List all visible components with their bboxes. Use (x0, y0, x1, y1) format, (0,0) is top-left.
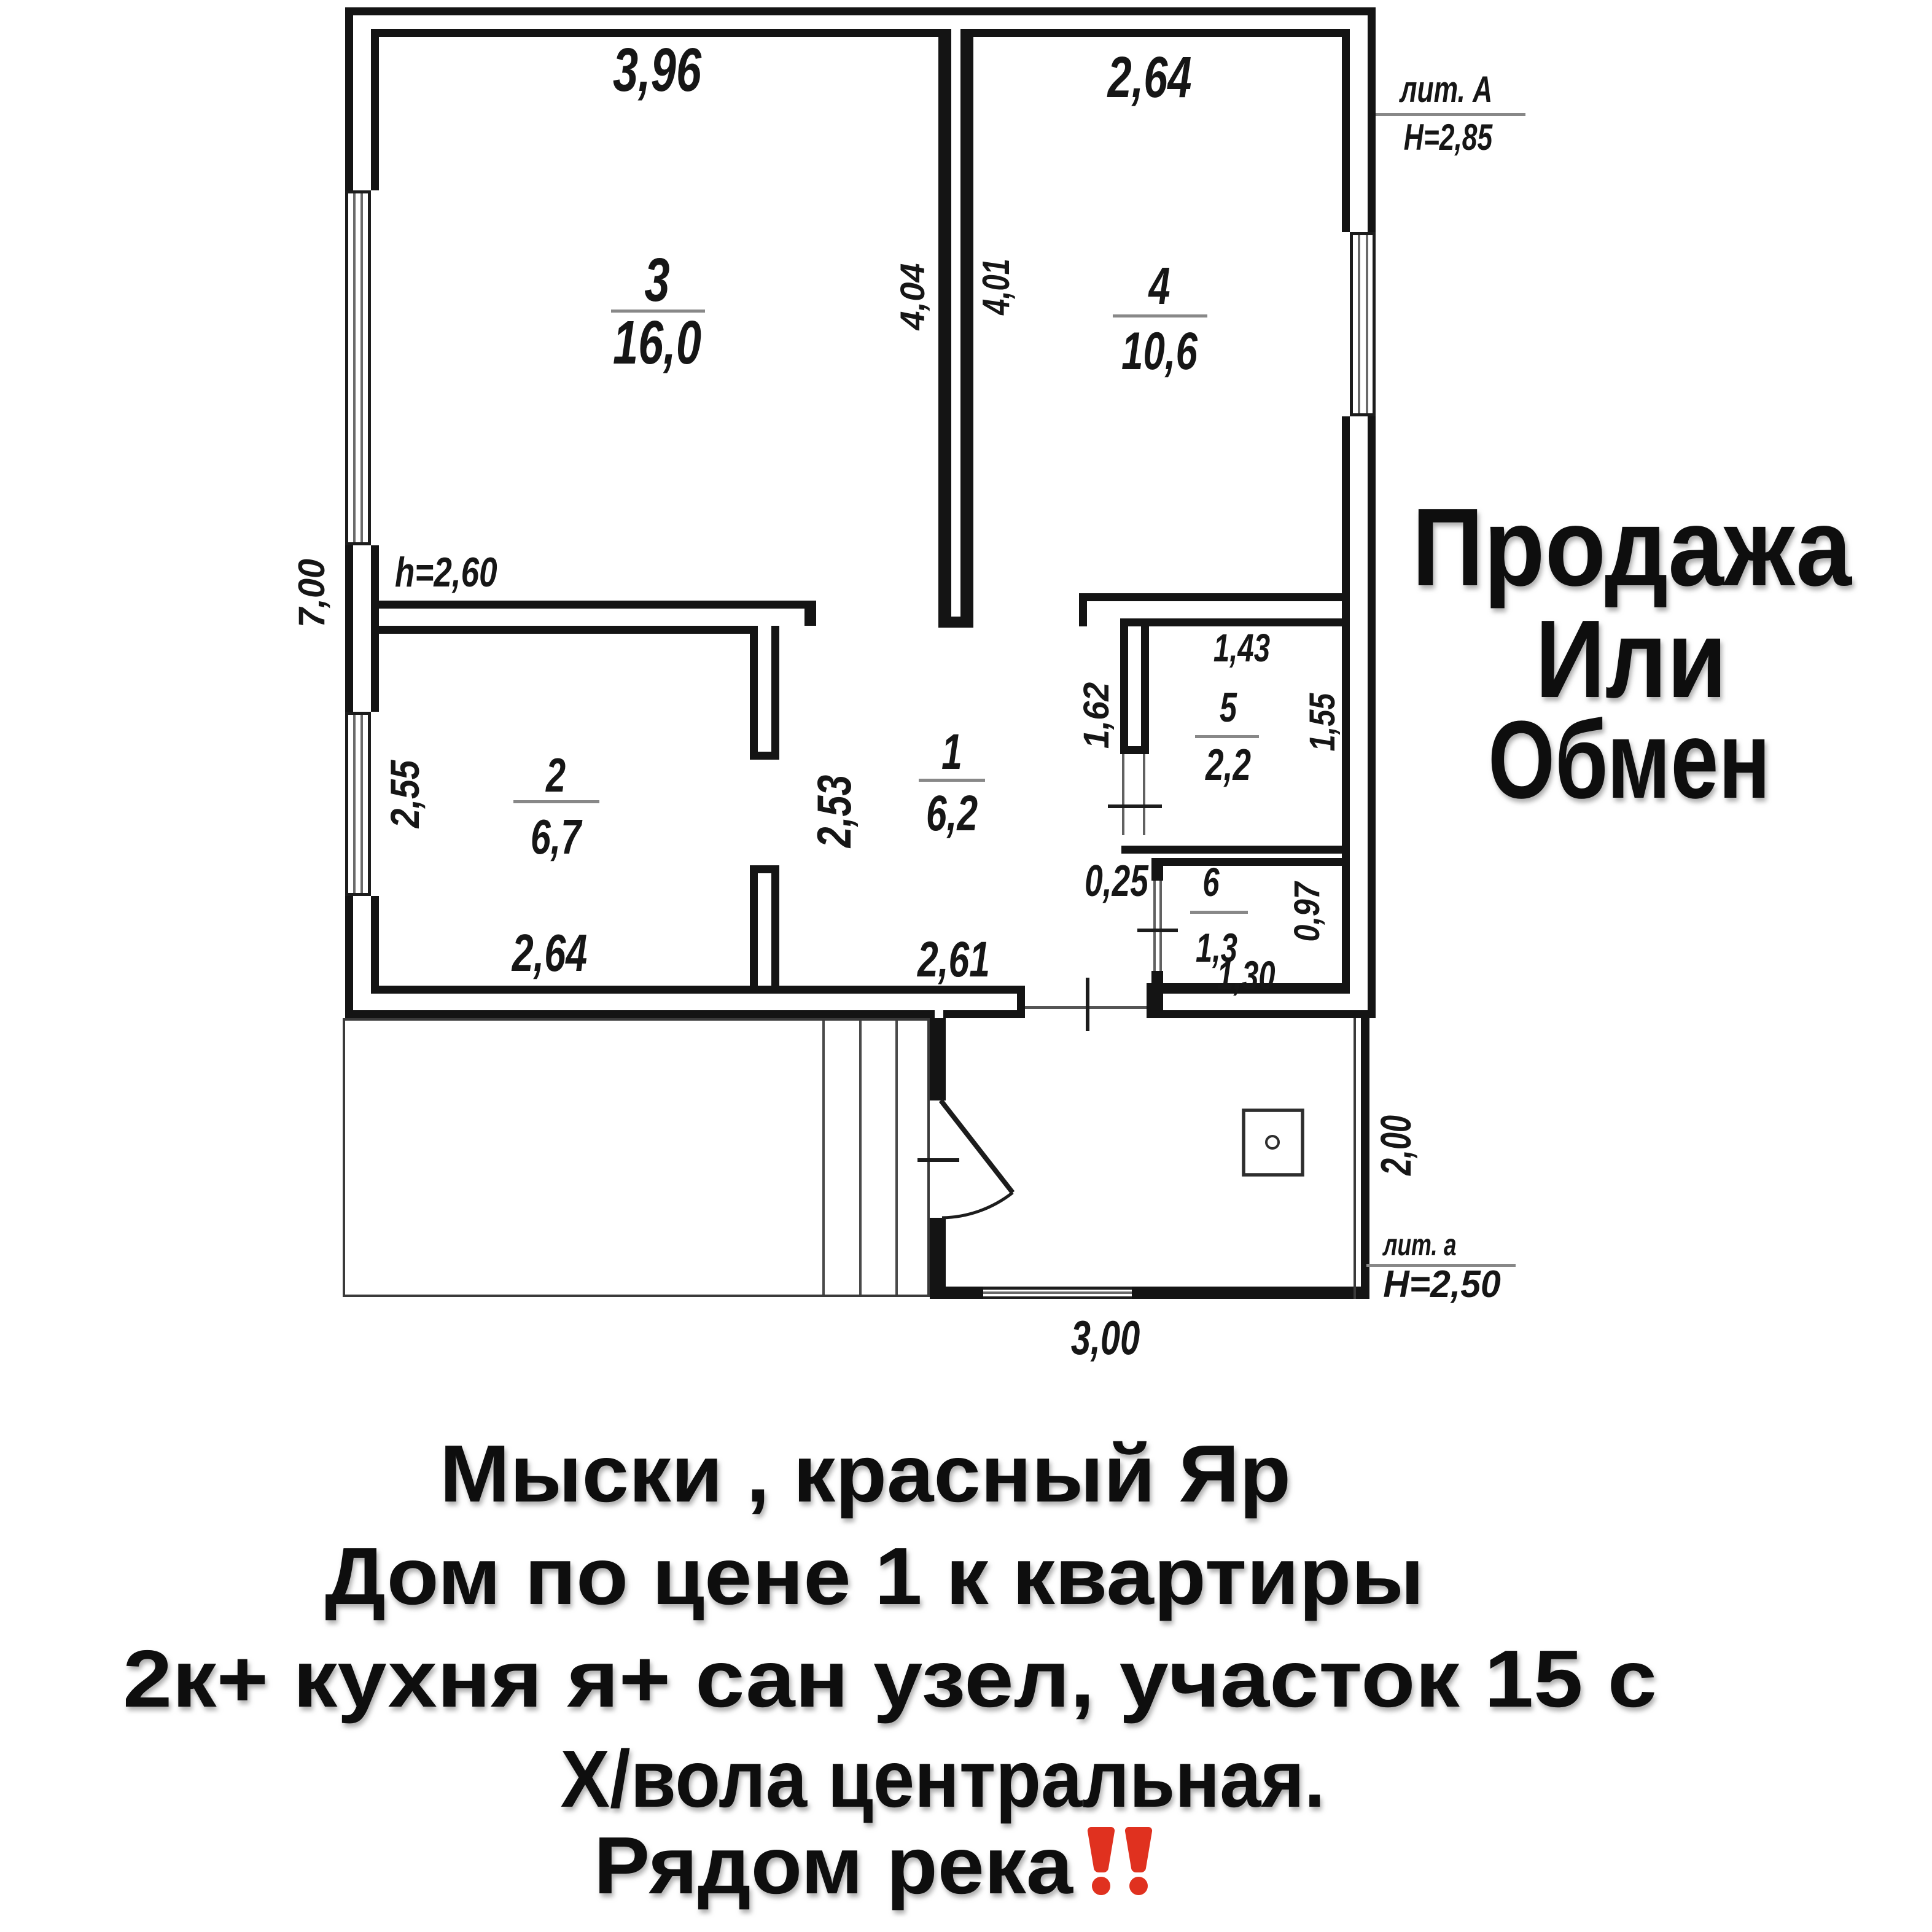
svg-text:6,2: 6,2 (926, 785, 978, 841)
svg-text:Н=2,50: Н=2,50 (1383, 1263, 1501, 1306)
svg-text:Х/вола центральная.: Х/вола центральная. (561, 1734, 1325, 1824)
svg-text:2,64: 2,64 (1107, 44, 1191, 110)
svg-text:2,00: 2,00 (1372, 1115, 1420, 1176)
svg-text:лит. а: лит. а (1382, 1228, 1457, 1263)
svg-text:3: 3 (644, 245, 669, 314)
svg-text:5: 5 (1220, 684, 1237, 731)
svg-text:16,0: 16,0 (613, 308, 701, 377)
svg-text:Н=2,85: Н=2,85 (1404, 117, 1493, 158)
svg-text:2,55: 2,55 (383, 760, 428, 828)
svg-text:1,43: 1,43 (1213, 626, 1270, 670)
svg-text:4,04: 4,04 (893, 263, 932, 331)
svg-text:0,97: 0,97 (1288, 881, 1327, 942)
svg-text:2,64: 2,64 (511, 924, 587, 982)
svg-text:6,7: 6,7 (531, 809, 583, 864)
svg-text:2,2: 2,2 (1205, 741, 1251, 790)
svg-text:лит. А: лит. А (1398, 69, 1492, 111)
svg-text:1,30: 1,30 (1217, 953, 1275, 999)
svg-text:4,01: 4,01 (975, 259, 1018, 316)
svg-text:Рядом река: Рядом река (594, 1820, 1074, 1911)
svg-text:3,96: 3,96 (613, 35, 702, 104)
svg-text:Обмен: Обмен (1488, 698, 1770, 822)
svg-text:3,00: 3,00 (1071, 1311, 1140, 1365)
svg-text:6: 6 (1202, 860, 1220, 905)
svg-text:2: 2 (545, 749, 566, 803)
svg-text:2к+ кухня я+ сан узел, участок: 2к+ кухня я+ сан узел, участок 15 с (123, 1634, 1657, 1724)
svg-text:1,62: 1,62 (1077, 682, 1116, 749)
svg-text:Дом по цене 1 к квартиры: Дом по цене 1 к квартиры (325, 1531, 1424, 1621)
svg-text:0,25: 0,25 (1085, 857, 1148, 906)
svg-text:7,00: 7,00 (292, 559, 332, 628)
svg-text:1: 1 (941, 724, 962, 780)
svg-text:Мыски , красный Яр: Мыски , красный Яр (440, 1428, 1291, 1519)
svg-text:4: 4 (1148, 257, 1170, 315)
svg-text:10,6: 10,6 (1121, 322, 1198, 381)
svg-text:1,55: 1,55 (1303, 692, 1342, 751)
svg-text:2,61: 2,61 (916, 932, 990, 987)
svg-text:h=2,60: h=2,60 (395, 549, 497, 596)
svg-text:Продажа: Продажа (1412, 486, 1853, 609)
svg-text:2,53: 2,53 (808, 775, 861, 849)
